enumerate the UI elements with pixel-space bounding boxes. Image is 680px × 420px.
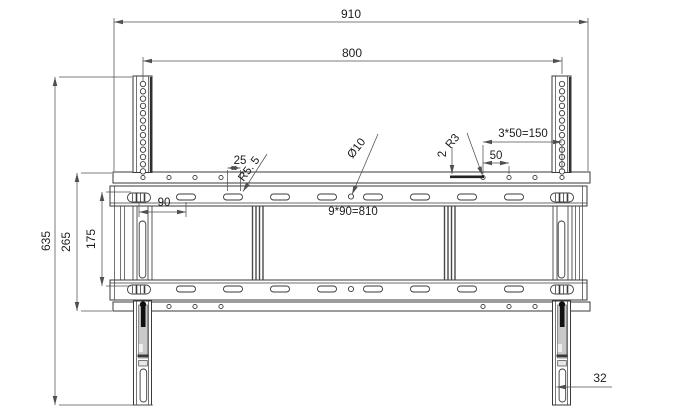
dim-label-hook-radius: R3: [444, 132, 463, 151]
wall-plate: [110, 172, 590, 311]
dim-label-strut-width: 32: [593, 371, 607, 385]
left-strut-top: [133, 76, 152, 174]
bracket-drawing-svg: 910 800 635 265 175 90 9*90=810 25 R5. 5…: [0, 0, 680, 420]
dim-label-overall-height: 635: [39, 231, 53, 251]
top-flange: [113, 172, 590, 183]
dim-label-hole-pitch: 50: [490, 150, 503, 162]
right-strut-bottom: [553, 301, 571, 405]
center-hole-bottom: [348, 286, 353, 291]
stiffener-bar-left: [253, 206, 264, 280]
dim-label-center-hole: Ø10: [345, 136, 368, 161]
leader-hook-radius: [467, 133, 483, 176]
stiffener-bar-right: [445, 206, 456, 280]
left-strut-bottom: [134, 301, 152, 405]
dim-label-thickness: 2: [437, 151, 449, 157]
right-strut-mid: [553, 206, 572, 280]
right-strut-top: [552, 76, 571, 174]
dim-label-mount-span: 800: [342, 46, 362, 60]
dim-label-plate-height: 265: [59, 232, 73, 252]
dim-label-hole-span: 3*50=150: [498, 128, 548, 140]
technical-drawing-canvas: 910 800 635 265 175 90 9*90=810 25 R5. 5…: [0, 0, 680, 420]
dim-label-slot-pitch: 90: [158, 197, 171, 209]
dim-label-slot-total: 9*90=810: [328, 206, 378, 218]
dim-label-overall-width: 910: [341, 7, 361, 21]
dim-label-rail-pitch: 175: [84, 229, 98, 249]
left-strut-mid: [133, 206, 152, 280]
center-hole-top: [348, 194, 353, 199]
bottom-flange: [113, 302, 590, 311]
